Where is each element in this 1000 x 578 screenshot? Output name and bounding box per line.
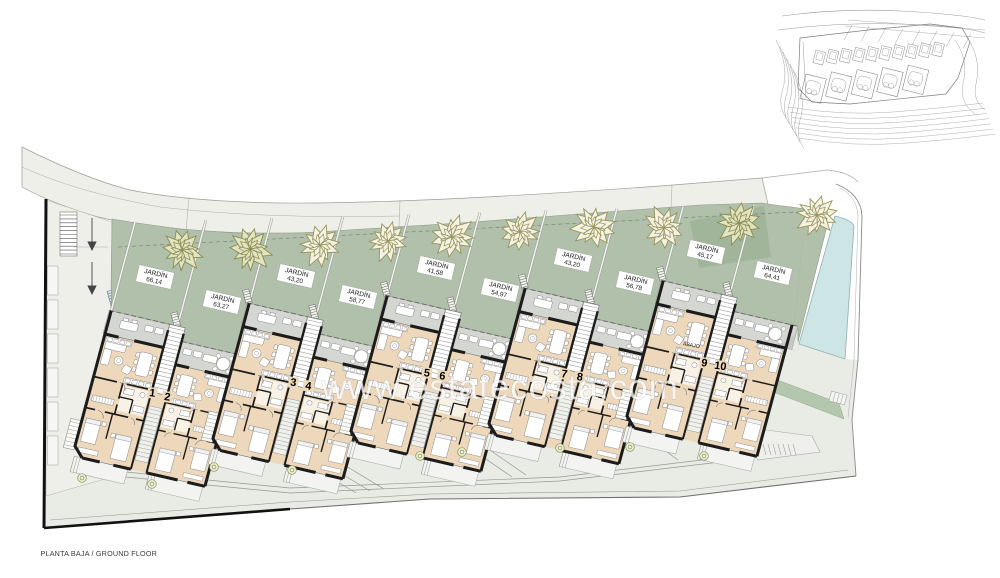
svg-text:10: 10 xyxy=(713,360,727,374)
svg-text:www.estatecosta.com: www.estatecosta.com xyxy=(320,368,678,407)
svg-text:PLANTA BAJA / GROUND FLOOR: PLANTA BAJA / GROUND FLOOR xyxy=(41,549,158,558)
